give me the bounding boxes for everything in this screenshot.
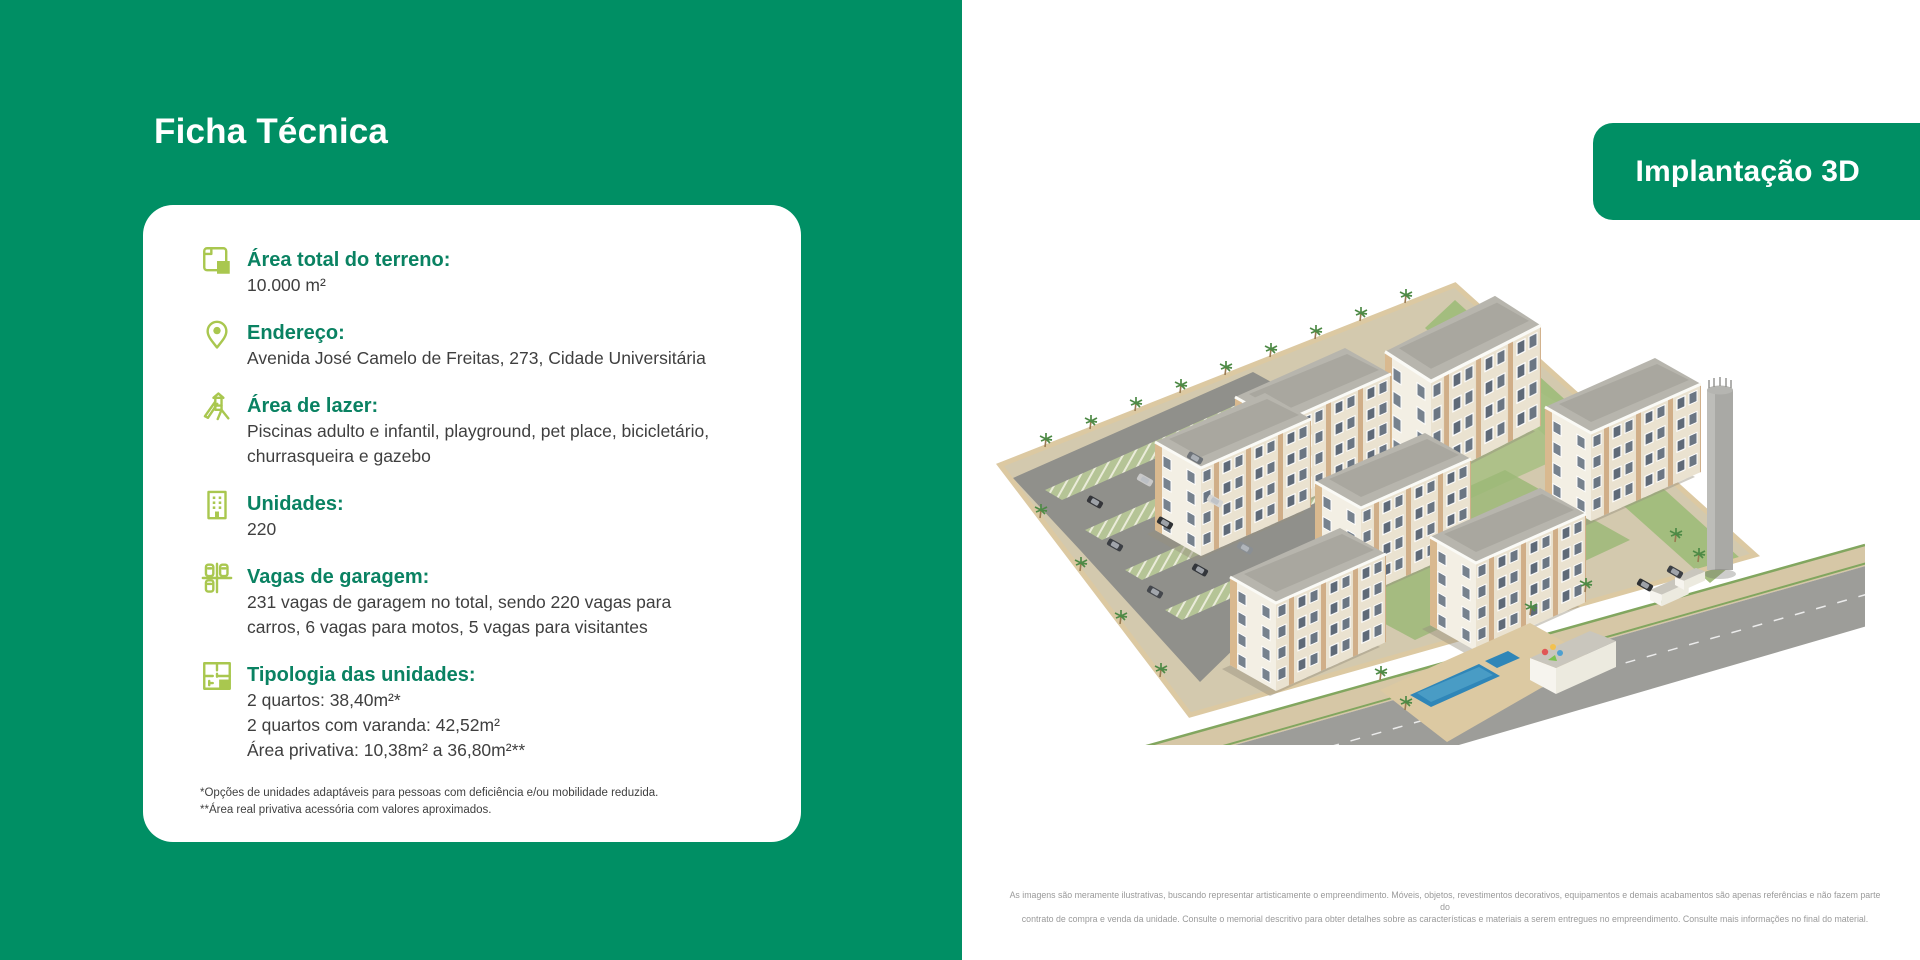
spec-item-value: 220 (247, 517, 344, 542)
building-icon (200, 488, 234, 524)
parking-icon (200, 561, 234, 597)
spec-item-label: Unidades: (247, 491, 344, 517)
spec-item-label: Área total do terreno: (247, 247, 450, 273)
area-icon (200, 244, 234, 280)
implantacao-panel: Implantação 3D (962, 0, 1920, 960)
badge-label: Implantação 3D (1635, 155, 1860, 189)
footnote: **Área real privativa acessória com valo… (200, 802, 761, 819)
floorplan-icon (200, 659, 234, 695)
disclaimer-line: As imagens são meramente ilustrativas, b… (1010, 890, 1881, 912)
spec-item-endereco: Endereço: Avenida José Camelo de Freitas… (200, 320, 761, 371)
spec-item-value: Avenida José Camelo de Freitas, 273, Cid… (247, 346, 706, 371)
spec-item-value: Piscinas adulto e infantil, playground, … (247, 419, 709, 444)
spec-item-value: 2 quartos: 38,40m²* (247, 688, 525, 713)
spec-item-label: Vagas de garagem: (247, 564, 671, 590)
disclaimer-text: As imagens são meramente ilustrativas, b… (1005, 889, 1885, 925)
spec-item-value: 231 vagas de garagem no total, sendo 220… (247, 590, 671, 615)
spec-item-label: Área de lazer: (247, 393, 709, 419)
spec-item-value: 2 quartos com varanda: 42,52m² (247, 713, 525, 738)
spec-item-value: 10.000 m² (247, 273, 450, 298)
spec-item-value: carros, 6 vagas para motos, 5 vagas para… (247, 615, 671, 640)
disclaimer-line: contrato de compra e venda da unidade. C… (1022, 914, 1868, 924)
spec-item-value: Área privativa: 10,38m² a 36,80m²** (247, 738, 525, 763)
spec-item-unidades: Unidades: 220 (200, 491, 761, 542)
page: Ficha Técnica Área total do terreno: 10.… (0, 0, 1920, 960)
spec-card: Área total do terreno: 10.000 m² Endereç… (143, 205, 801, 842)
spec-item-area-total: Área total do terreno: 10.000 m² (200, 247, 761, 298)
spec-item-label: Endereço: (247, 320, 706, 346)
playground-icon (200, 390, 234, 426)
location-pin-icon (200, 317, 234, 353)
footnote: *Opções de unidades adaptáveis para pess… (200, 785, 761, 802)
spec-item-value: churrasqueira e gazebo (247, 444, 709, 469)
spec-item-tipologia: Tipologia das unidades: 2 quartos: 38,40… (200, 662, 761, 763)
spec-item-vagas: Vagas de garagem: 231 vagas de garagem n… (200, 564, 761, 640)
spec-footnotes: *Opções de unidades adaptáveis para pess… (200, 785, 761, 819)
implantacao-3d-badge: Implantação 3D (1593, 123, 1920, 220)
water-tower (1704, 377, 1736, 579)
page-title: Ficha Técnica (154, 112, 388, 152)
spec-item-label: Tipologia das unidades: (247, 662, 525, 688)
site-plan-3d-render (985, 240, 1865, 745)
ficha-tecnica-panel: Ficha Técnica Área total do terreno: 10.… (0, 0, 962, 960)
spec-item-lazer: Área de lazer: Piscinas adulto e infanti… (200, 393, 761, 469)
